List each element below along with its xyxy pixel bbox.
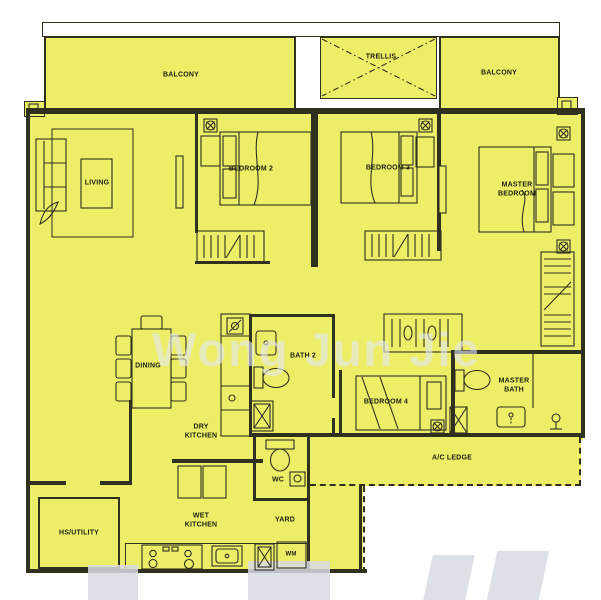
- watermark-fragment: [487, 551, 549, 600]
- trellis: [320, 37, 437, 99]
- watermark-fragment: [248, 561, 330, 600]
- room-label-master-bath: MASTER BATH: [493, 377, 535, 395]
- watermark-text: Wong Jun Jie: [152, 326, 482, 373]
- wall: [581, 108, 585, 438]
- room-label-master-bedroom: MASTER BEDROOM: [494, 181, 540, 199]
- wall: [311, 113, 318, 267]
- room-label-bedroom3: BEDROOM 3: [366, 165, 410, 174]
- wall: [195, 113, 198, 233]
- room-label-wet-kitchen: WET KITCHEN: [181, 512, 221, 530]
- wall: [100, 481, 132, 485]
- wall: [195, 261, 270, 264]
- wall: [26, 108, 585, 114]
- wall: [26, 481, 66, 485]
- wall: [26, 108, 30, 573]
- room-label-living: LIVING: [85, 180, 110, 189]
- room-label-dry-kitchen: DRY KITCHEN: [182, 423, 220, 441]
- room-label-ac-ledge: A/C LEDGE: [432, 455, 472, 464]
- wall: [249, 314, 335, 317]
- wall: [437, 113, 441, 251]
- room-label-bedroom2: BEDROOM 2: [229, 166, 273, 175]
- wall: [339, 370, 342, 436]
- room-label-balcony-left: BALCONY: [163, 72, 199, 81]
- wall: [129, 400, 132, 485]
- wall: [253, 498, 310, 501]
- watermark-fragment: [88, 565, 138, 600]
- wall: [172, 459, 263, 463]
- room-label-hs-utility: HS/UTILITY: [59, 530, 99, 539]
- room-label-wc: WC: [272, 477, 284, 486]
- room-label-bedroom4: BEDROOM 4: [364, 399, 408, 408]
- room-label-balcony-right: BALCONY: [481, 70, 517, 79]
- watermark-fragment: [423, 555, 475, 600]
- ledge-boundary-dashed: [363, 486, 365, 573]
- room-label-wm: WM: [285, 551, 296, 559]
- wall: [253, 437, 256, 501]
- roof-eave-outline: [42, 22, 560, 37]
- room-label-yard: YARD: [275, 517, 295, 526]
- room-label-trellis: TRELLIS: [366, 54, 397, 63]
- floor-plan: BALCONY TRELLIS BALCONY LIVING BEDROOM 2…: [0, 0, 601, 600]
